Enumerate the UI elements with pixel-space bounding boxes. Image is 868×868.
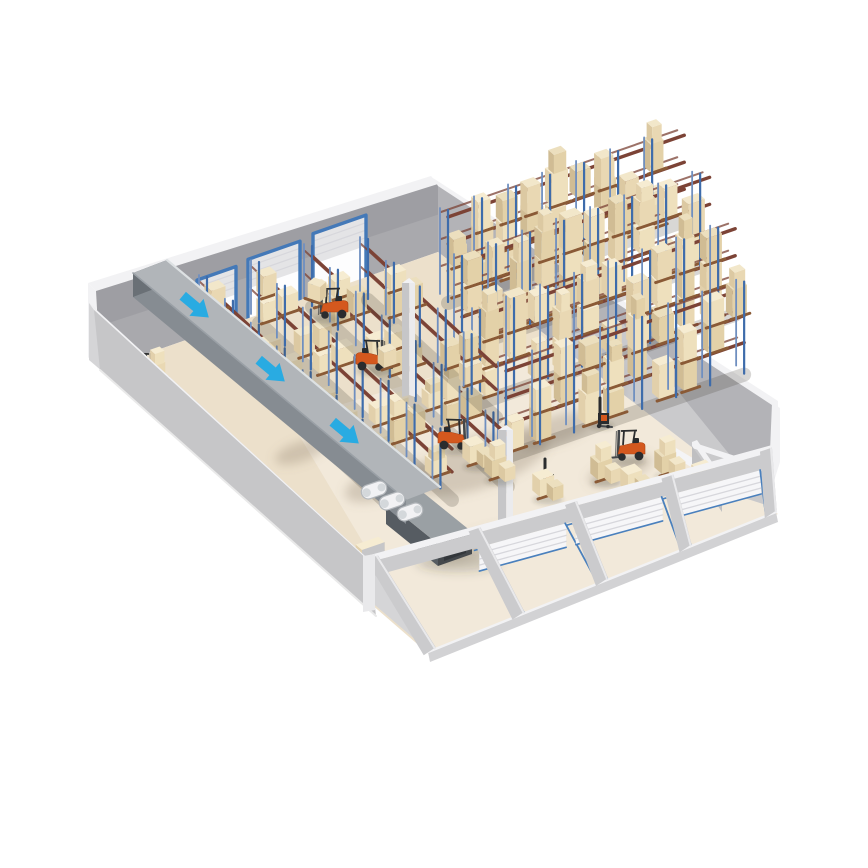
carton-box [561, 292, 570, 312]
forklift-wheel [338, 310, 347, 319]
forklift-wheel [635, 452, 644, 461]
forklift-wheel [358, 362, 367, 371]
stacker-wheel [606, 425, 610, 429]
carton-box [541, 228, 554, 261]
carton-box [561, 343, 574, 377]
forklift-wheel [321, 311, 329, 319]
carton-box [659, 313, 674, 343]
stacker-accent [601, 415, 607, 421]
carton-box [658, 249, 672, 281]
carton-box [543, 212, 552, 232]
carton-box [608, 198, 615, 235]
carton-box [684, 360, 697, 391]
carton-box [637, 297, 646, 319]
carton-box [535, 292, 549, 323]
carton-box [492, 243, 504, 277]
carton-box [652, 124, 661, 144]
carton-box [512, 419, 524, 450]
forklift-seat [633, 438, 639, 443]
forklift-wheel [618, 453, 626, 461]
carton-box [478, 198, 490, 231]
carton-box [684, 218, 693, 240]
carton-box [652, 360, 659, 399]
carton-box [635, 315, 647, 351]
carton-box [594, 153, 601, 189]
carton-box [707, 233, 722, 263]
carton-box [610, 388, 624, 416]
carton-box [559, 308, 571, 341]
carton-box [601, 155, 613, 189]
carton-box [552, 168, 568, 206]
warehouse-3d-illustration [0, 0, 868, 868]
carton-box [510, 293, 526, 332]
carton-box [684, 329, 697, 362]
forklift-seat [362, 348, 368, 353]
stacker-fork [600, 426, 612, 427]
forklift-seat [444, 427, 450, 432]
support-column [409, 281, 415, 397]
carton-box [519, 239, 530, 263]
front-corner-post [363, 554, 375, 612]
forklift-wheel [440, 441, 449, 450]
carton-box [566, 213, 582, 252]
carton-box [659, 361, 674, 399]
carton-box [486, 307, 499, 340]
stacker-wheel [597, 424, 601, 428]
carton-box [578, 389, 585, 425]
carton-box [468, 256, 482, 286]
carton-box [527, 183, 540, 215]
carton-box [554, 342, 561, 377]
carton-box [615, 200, 627, 235]
forklift-seat [336, 296, 342, 301]
support-column [402, 281, 409, 397]
carton-box [552, 307, 559, 342]
carton-box [488, 292, 497, 312]
warehouse-scene-svg [0, 0, 868, 868]
